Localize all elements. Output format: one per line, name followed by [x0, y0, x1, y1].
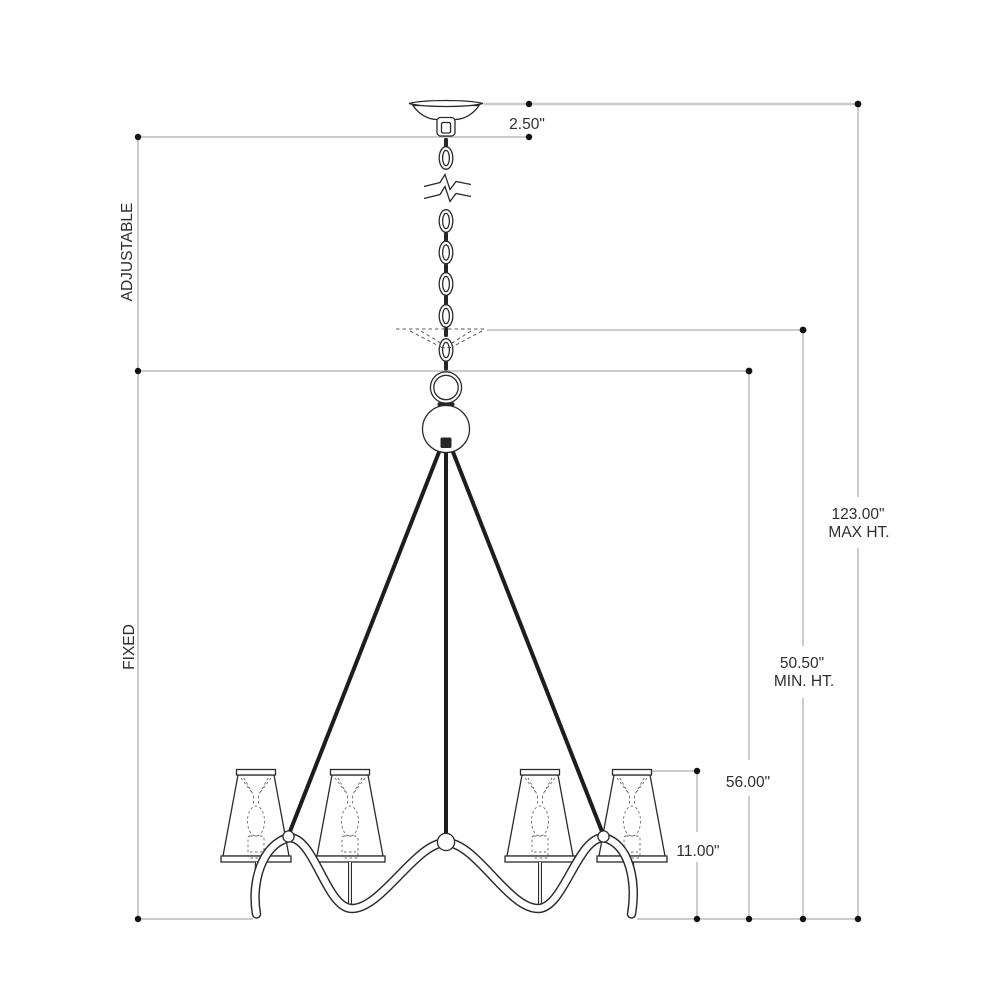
shade-3: [505, 770, 575, 863]
shade-2: [315, 770, 385, 863]
ceiling-canopy: [409, 101, 483, 137]
shade-4: [597, 770, 667, 863]
dim-label-adjustable: ADJUSTABLE: [119, 203, 136, 302]
hanging-chain: [439, 138, 453, 371]
ball-finial: [423, 406, 470, 453]
dim-label-max-height-value: 123.00": [832, 506, 885, 523]
chain-break-icon: [424, 175, 471, 203]
hang-ring: [430, 372, 461, 403]
arm-joint-left: [283, 831, 294, 842]
dimension-labels: 2.50" ADJUSTABLE FIXED 123.00" MAX HT. 5…: [119, 116, 890, 860]
finial-nut: [441, 438, 452, 449]
dim-label-min-height-caption: MIN. HT.: [774, 673, 834, 690]
dim-label-max-height-caption: MAX HT.: [828, 524, 889, 541]
dim-label-min-height-value: 50.50": [780, 655, 824, 672]
dim-label-fixture-height: 56.00": [726, 774, 770, 791]
dim-label-body-height: 11.00": [676, 843, 719, 860]
chandelier-spec-diagram: 2.50" ADJUSTABLE FIXED 123.00" MAX HT. 5…: [0, 0, 1000, 1000]
dimension-drawing-canvas: 2.50" ADJUSTABLE FIXED 123.00" MAX HT. 5…: [0, 0, 1000, 1000]
dim-label-fixed: FIXED: [121, 624, 138, 670]
dim-label-canopy-height: 2.50": [509, 116, 545, 133]
serpentine-arm: [255, 831, 633, 914]
center-hub-ball: [437, 833, 454, 850]
arm-joint-right: [598, 831, 609, 842]
shade-1: [221, 770, 291, 863]
